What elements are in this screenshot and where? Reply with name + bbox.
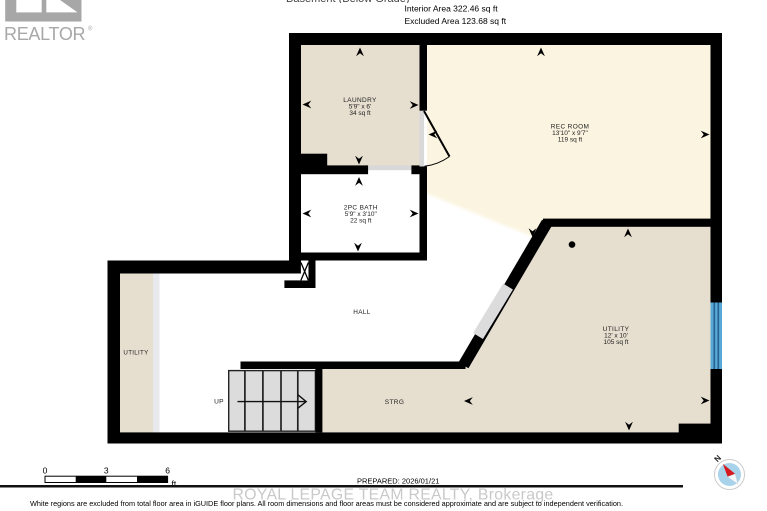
svg-text:Interior Area 322.46 sq ft: Interior Area 322.46 sq ft — [405, 4, 499, 14]
svg-text:REALTOR: REALTOR — [4, 24, 86, 44]
svg-text:White regions are excluded fro: White regions are excluded from total fl… — [30, 499, 623, 508]
svg-text:UTILITY: UTILITY — [123, 350, 148, 357]
svg-text:®: ® — [88, 26, 93, 33]
svg-text:STRG: STRG — [385, 399, 404, 406]
svg-text:119 sq ft: 119 sq ft — [558, 136, 583, 143]
svg-text:HALL: HALL — [353, 309, 370, 316]
svg-text:34 sq ft: 34 sq ft — [349, 110, 371, 117]
svg-text:PREPARED: 2026/01/21: PREPARED: 2026/01/21 — [357, 477, 439, 486]
svg-text:3: 3 — [104, 466, 109, 476]
svg-text:0: 0 — [43, 466, 48, 476]
svg-text:105 sq ft: 105 sq ft — [604, 339, 629, 346]
svg-text:Excluded Area 123.68 sq ft: Excluded Area 123.68 sq ft — [405, 16, 507, 26]
svg-text:22 sq ft: 22 sq ft — [350, 217, 372, 224]
svg-text:UP: UP — [214, 398, 224, 405]
svg-text:6: 6 — [165, 466, 170, 476]
